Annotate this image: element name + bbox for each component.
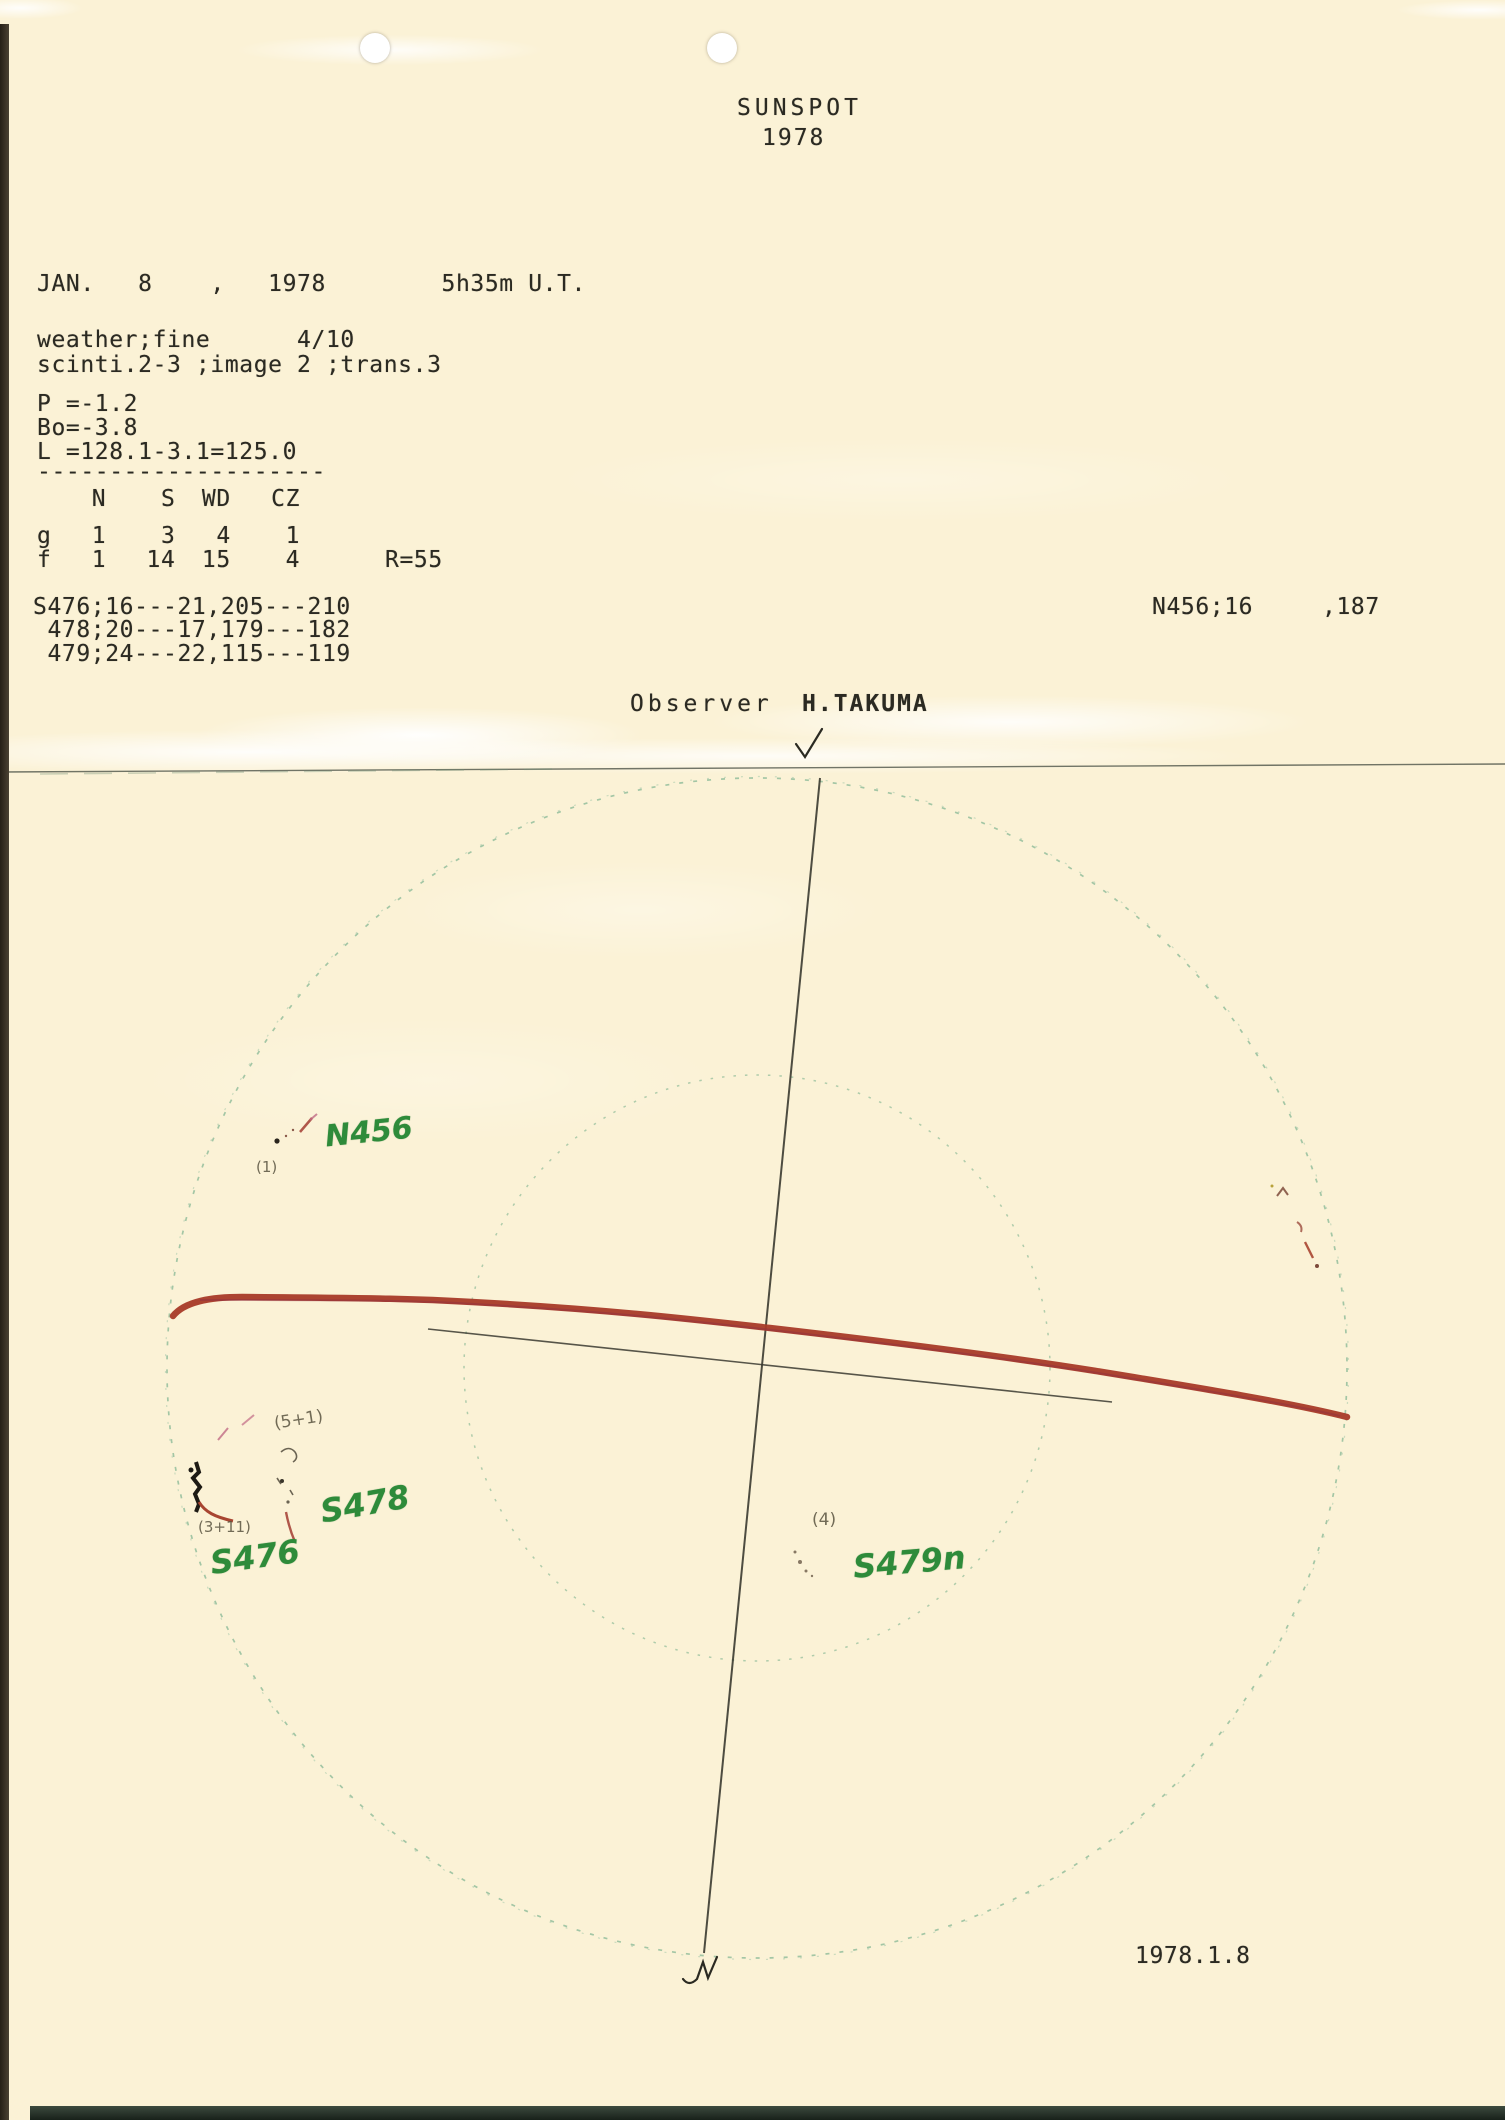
west-limb-marks-drawing <box>1271 1185 1320 1269</box>
count-s479: (4) <box>812 1510 836 1530</box>
scan-edge-bottom <box>30 2106 1505 2120</box>
date-line: JAN. 8 , 1978 5h35m U.T. <box>37 272 586 297</box>
equator-line-texture <box>200 1300 1340 1416</box>
south-group-line-2: 478;20---17,179---182 <box>33 618 351 643</box>
south-mark <box>683 1957 717 1983</box>
row-label-g: g <box>37 524 51 549</box>
page-title-year: 1978 <box>762 126 825 151</box>
solar-limb-circle <box>167 778 1347 1958</box>
sunspot-group-n456-drawing <box>274 1114 317 1144</box>
col-header-cz: CZ <box>231 487 300 512</box>
cell-g-s: 3 <box>106 524 175 549</box>
observer-name: H.TAKUMA <box>802 692 929 717</box>
scanned-sheet: SUNSPOT 1978 JAN. 8 , 1978 5h35m U.T. we… <box>0 0 1505 2120</box>
sun-disk-diagram <box>0 0 1505 2120</box>
count-n456: (1) <box>256 1158 277 1176</box>
counts-row-g: g1341 <box>37 524 300 549</box>
seeing-line: scinti.2-3 ;image 2 ;trans.3 <box>37 353 442 378</box>
solar-limb-circle-texture <box>166 777 1349 1960</box>
cell-f-n: 1 <box>51 548 106 573</box>
cell-g-wd: 4 <box>175 524 230 549</box>
bo-value: Bo=-3.8 <box>37 416 138 441</box>
latitude-line <box>428 1329 1112 1402</box>
cell-g-cz: 1 <box>231 524 300 549</box>
date-stamp: 1978.1.8 <box>1135 1944 1251 1969</box>
north-group-complement: ,187 <box>1322 595 1380 620</box>
weather-line: weather;fine 4/10 <box>37 328 355 353</box>
relative-number: R=55 <box>385 548 443 573</box>
col-header-wd: WD <box>175 487 230 512</box>
meridian-line <box>704 778 820 1953</box>
south-group-line-3: 479;24---22,115---119 <box>33 642 351 667</box>
col-header-s: S <box>106 487 175 512</box>
count-s476: (3+11) <box>198 1518 251 1536</box>
page-title: SUNSPOT <box>737 96 862 121</box>
cell-g-n: 1 <box>51 524 106 549</box>
cell-f-s: 14 <box>106 548 175 573</box>
north-mark <box>796 729 822 757</box>
counts-row-f: f114154 <box>37 548 300 573</box>
observer-label: Observer <box>630 692 773 717</box>
row-label-f: f <box>37 548 51 573</box>
divider-line: -------------------- <box>37 460 326 485</box>
counts-table-header: NSWDCZ <box>37 487 300 512</box>
punch-hole-left <box>360 33 390 63</box>
scan-edge-left <box>0 24 9 2120</box>
punch-hole-right <box>707 33 737 63</box>
equator-line-red <box>173 1297 1347 1417</box>
cell-f-cz: 4 <box>231 548 300 573</box>
p-value: P =-1.2 <box>37 392 138 417</box>
sunspot-group-s479-drawing <box>794 1551 814 1578</box>
col-header-n: N <box>51 487 106 512</box>
north-group-line: N456;16 <box>1152 595 1253 620</box>
sunspot-group-s476-drawing <box>189 1462 234 1521</box>
cell-f-wd: 15 <box>175 548 230 573</box>
scan-fold-line <box>0 764 1505 772</box>
